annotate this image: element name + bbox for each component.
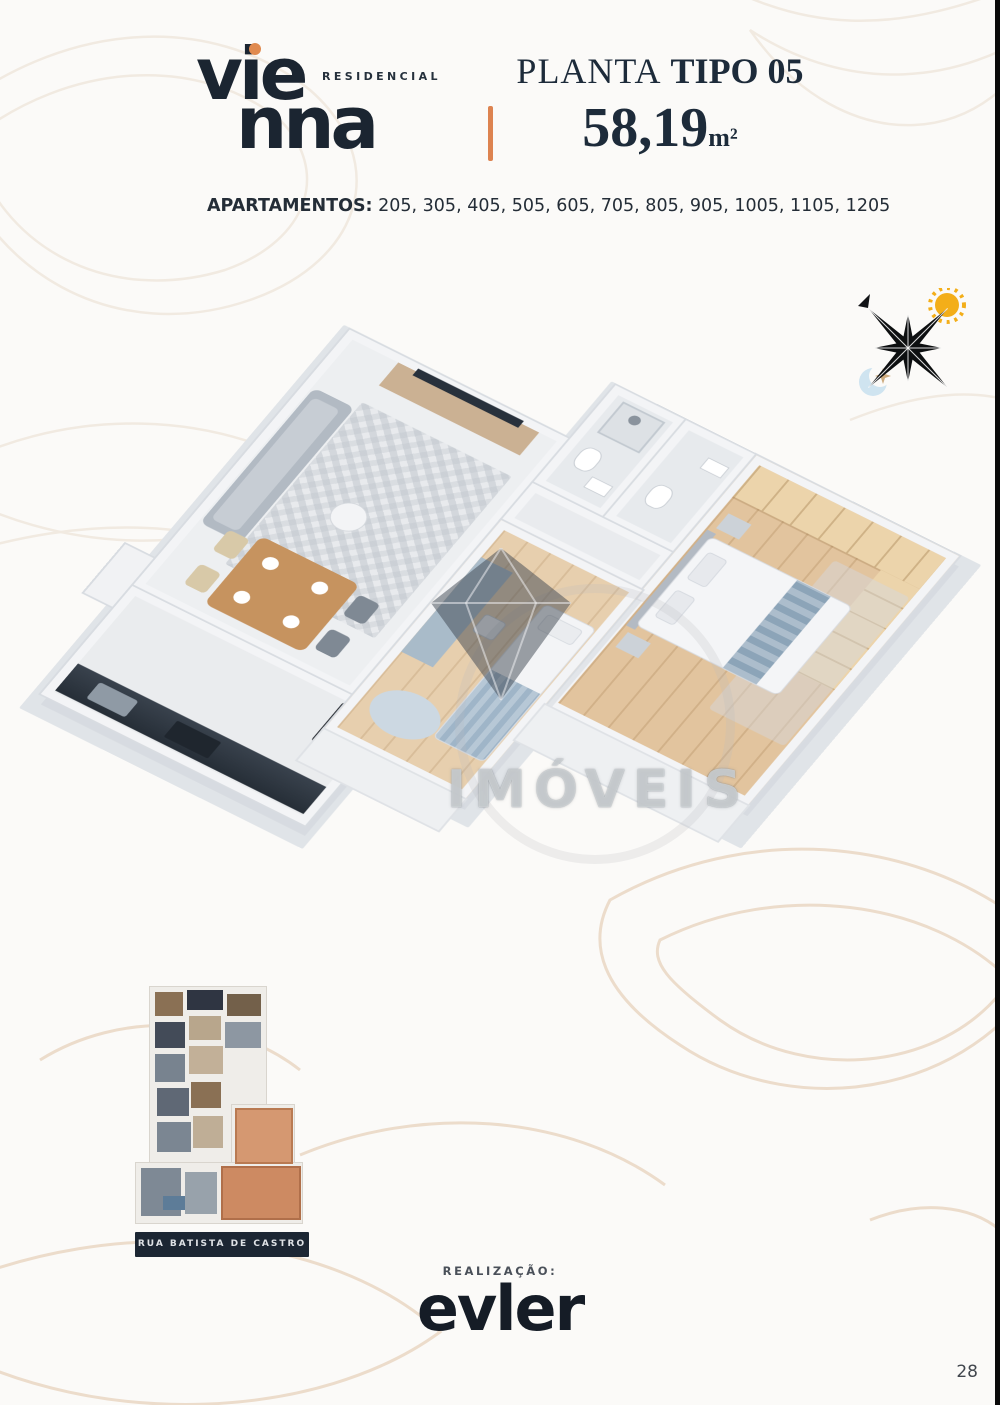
right-edge-strip	[995, 0, 1000, 1405]
evler-logo: evler	[0, 1278, 1000, 1340]
vienna-logo: vie RESIDENCIAL nna	[196, 44, 375, 156]
footer: REALIZAÇÃO: evler	[0, 1264, 1000, 1340]
keyplan-unit	[157, 1088, 189, 1116]
street-label-bar: RUA BATISTA DE CASTRO	[135, 1232, 309, 1257]
page-number: 28	[956, 1362, 978, 1382]
plate	[308, 579, 331, 597]
shower-area	[597, 401, 666, 453]
keyplan-unit	[157, 1122, 191, 1152]
nightstand	[615, 632, 650, 658]
apartments-line: APARTAMENTOS: 205, 305, 405, 505, 605, 7…	[207, 196, 890, 216]
keyplan-highlighted-unit	[235, 1108, 293, 1164]
keyplan-unit	[225, 1022, 261, 1048]
keyplan-unit	[155, 1054, 185, 1082]
page-title: PLANTA TIPO 05	[480, 50, 840, 92]
title-planta: PLANTA	[516, 51, 661, 91]
residencial-label: RESIDENCIAL	[322, 72, 441, 81]
keyplan-highlighted-unit	[221, 1166, 301, 1220]
keyplan-unit	[185, 1172, 217, 1214]
logo-orange-dot-icon	[249, 43, 261, 55]
area-unit: m²	[708, 123, 737, 152]
floor-plan-3d	[41, 276, 959, 975]
title-tipo: TIPO 05	[671, 51, 804, 91]
plan-title-block: PLANTA TIPO 05 58,19m²	[480, 50, 840, 160]
bathroom-sink	[583, 476, 613, 497]
keyplan-unit	[193, 1116, 223, 1148]
plate	[280, 613, 303, 631]
keyplan-unit	[155, 1022, 185, 1048]
logo-text-vie-row: vie RESIDENCIAL	[196, 44, 375, 105]
keyplan-unit	[189, 1016, 221, 1040]
apartments-label: APARTAMENTOS:	[207, 196, 373, 216]
keyplan-unit	[191, 1082, 221, 1108]
area-line: 58,19m²	[480, 96, 840, 160]
toilet	[569, 445, 606, 475]
nightstand	[716, 513, 751, 539]
plate	[259, 555, 282, 573]
north-arrow-icon	[858, 294, 870, 308]
area-value: 58,19	[582, 97, 708, 159]
orange-accent-bar	[488, 106, 493, 161]
keyplan-unit	[187, 990, 223, 1010]
sun-icon	[930, 288, 964, 322]
dining-chair	[314, 628, 352, 659]
keyplan-unit	[189, 1046, 223, 1074]
compass-icon	[850, 288, 968, 408]
keyplan: RUA BATISTA DE CASTRO	[133, 986, 313, 1260]
apartments-numbers: 205, 305, 405, 505, 605, 705, 805, 905, …	[378, 196, 890, 216]
bathroom-sink	[699, 457, 729, 478]
keyplan-unit	[163, 1196, 185, 1210]
keyplan-unit	[155, 992, 183, 1016]
street-label: RUA BATISTA DE CASTRO	[135, 1232, 309, 1257]
brochure-page: vie RESIDENCIAL nna PLANTA TIPO 05 58,19…	[0, 0, 1000, 1405]
plate	[230, 588, 253, 606]
keyplan-unit	[227, 994, 261, 1016]
desk-chair	[471, 613, 507, 641]
toilet	[640, 482, 677, 512]
pillow	[536, 614, 584, 646]
